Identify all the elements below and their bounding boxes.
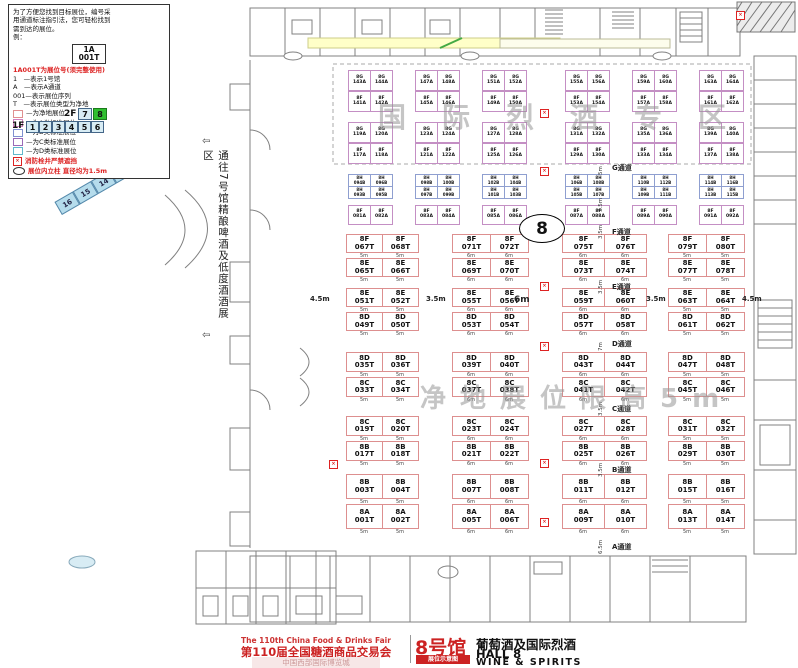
legend-fire-note: 消防栓井严禁遮挡 xyxy=(25,157,77,165)
booth-width-label: 6m xyxy=(452,277,490,283)
booth-8D050T: 8D050T xyxy=(382,312,419,331)
footer-banner: The 110th China Food & Drinks Fair 第110届… xyxy=(0,630,798,666)
fire-hydrant-icon: × xyxy=(329,460,338,469)
floor-label-2f: 2F xyxy=(64,109,76,119)
booth-width-label: 5m xyxy=(346,529,382,535)
booth-width-label: 5m xyxy=(706,253,744,259)
booth-8F126A: 8F126A xyxy=(504,143,527,164)
booth-width-label: 6m xyxy=(452,372,490,378)
booth-8H103B: 8H103B xyxy=(504,186,527,199)
booth-type-swatch xyxy=(13,138,23,146)
fire-hydrant-icon: × xyxy=(13,157,22,166)
booth-8C041T: 8C041T xyxy=(562,377,605,397)
booth-width-label: 5m xyxy=(706,461,744,467)
booth-8F118A: 8F118A xyxy=(370,143,393,164)
booth-8F092A: 8F092A xyxy=(721,205,744,225)
booth-8F129A: 8F129A xyxy=(565,143,588,164)
legend-swatch-row: —为C类标准展位 xyxy=(13,138,165,146)
booth-width-label: 5m xyxy=(382,499,418,505)
booth-width-label: 5m xyxy=(668,277,706,283)
booth-8G152A: 8G152A xyxy=(504,70,527,91)
legend-column-note: 展位内立柱 直径均为1.5m xyxy=(28,167,107,175)
booth-8H105B: 8H105B xyxy=(565,186,588,199)
booth-8B012T: 8B012T xyxy=(604,474,647,499)
booth-8E074T: 8E074T xyxy=(604,258,647,277)
booth-8E052T: 8E052T xyxy=(382,288,419,307)
booth-width-label: 6m xyxy=(490,277,528,283)
booth-width-label: 5m xyxy=(668,253,706,259)
booth-width-label: 5m xyxy=(382,277,418,283)
booth-8F146A: 8F146A xyxy=(437,91,460,112)
booth-8G144A: 8G144A xyxy=(370,70,393,91)
booth-width-label: 5m xyxy=(382,331,418,337)
booth-8A002T: 8A002T xyxy=(382,504,419,529)
aisle-width-label: 3.5m xyxy=(598,198,604,212)
booth-8B018T: 8B018T xyxy=(382,441,419,461)
booth-8B017T: 8B017T xyxy=(346,441,383,461)
cross-aisle-width: 4.5m xyxy=(742,295,762,303)
booth-width-label: 5m xyxy=(382,529,418,535)
booth-width-label: 5m xyxy=(706,529,744,535)
booth-8C028T: 8C028T xyxy=(604,416,647,436)
booth-8H113B: 8H113B xyxy=(699,186,722,199)
cross-aisle-width: 4.5m xyxy=(310,295,330,303)
booth-8D035T: 8D035T xyxy=(346,352,383,372)
booth-8H109B: 8H109B xyxy=(632,186,655,199)
booth-8H095B: 8H095B xyxy=(370,186,393,199)
booth-8G147A: 8G147A xyxy=(415,70,438,91)
booth-width-label: 6m xyxy=(562,372,604,378)
booth-width-label: 5m xyxy=(668,397,706,403)
booth-width-label: 5m xyxy=(382,436,418,442)
hall-tab-8: 8 xyxy=(93,108,107,120)
aisle-label-F通道: F通道 xyxy=(612,227,631,237)
booth-8E077T: 8E077T xyxy=(668,258,707,277)
booth-width-label: 5m xyxy=(706,372,744,378)
booth-8C034T: 8C034T xyxy=(382,377,419,397)
hall-tab-1: 1 xyxy=(26,121,39,133)
booth-8F141A: 8F141A xyxy=(348,91,371,112)
booth-width-label: 5m xyxy=(346,277,382,283)
booth-8F068T: 8F068T xyxy=(382,234,419,253)
booth-width-label: 5m xyxy=(706,499,744,505)
booth-8D057T: 8D057T xyxy=(562,312,605,331)
booth-width-label: 5m xyxy=(668,529,706,535)
booth-8F084A: 8F084A xyxy=(437,205,460,225)
booth-width-label: 5m xyxy=(706,307,744,313)
booth-width-label: 6m xyxy=(490,331,528,337)
aisle-label-C通道: C通道 xyxy=(612,404,631,414)
booth-8G148A: 8G148A xyxy=(437,70,460,91)
booth-8F149A: 8F149A xyxy=(482,91,505,112)
hall-tab-2: 2 xyxy=(39,121,52,133)
booth-8C027T: 8C027T xyxy=(562,416,605,436)
aisle-width-label: 3.5m xyxy=(598,402,604,416)
booth-width-label: 6m xyxy=(604,499,646,505)
aisle-label-B通道: B通道 xyxy=(612,465,631,475)
cross-aisle-width: 6m xyxy=(514,295,530,305)
legend-item: 1 —表示1号馆 xyxy=(13,75,165,83)
booth-8B003T: 8B003T xyxy=(346,474,383,499)
booth-8F150A: 8F150A xyxy=(504,91,527,112)
booth-width-label: 6m xyxy=(604,372,646,378)
booth-8B015T: 8B015T xyxy=(668,474,707,499)
fire-hydrant-icon: × xyxy=(540,342,549,351)
booth-8E078T: 8E078T xyxy=(706,258,745,277)
booth-8C020T: 8C020T xyxy=(382,416,419,436)
booth-width-label: 6m xyxy=(490,499,528,505)
booth-8H111B: 8H111B xyxy=(654,186,677,199)
aisle-label-D通道: D通道 xyxy=(612,339,632,349)
booth-8B011T: 8B011T xyxy=(562,474,605,499)
booth-8D040T: 8D040T xyxy=(490,352,529,372)
booth-8G124A: 8G124A xyxy=(437,122,460,143)
booth-8B026T: 8B026T xyxy=(604,441,647,461)
booth-type-swatch xyxy=(13,147,23,155)
booth-8E069T: 8E069T xyxy=(452,258,491,277)
booth-type-swatch xyxy=(13,110,23,118)
booth-8A010T: 8A010T xyxy=(604,504,647,529)
booth-8G132A: 8G132A xyxy=(587,122,610,143)
pillar-icon xyxy=(13,167,25,175)
booth-width-label: 5m xyxy=(668,307,706,313)
hall-tab-7: 7 xyxy=(78,108,92,120)
booth-8D036T: 8D036T xyxy=(382,352,419,372)
fire-hydrant-icon: × xyxy=(540,109,549,118)
booth-width-label: 6m xyxy=(604,331,646,337)
booth-width-label: 5m xyxy=(382,372,418,378)
booth-8F145A: 8F145A xyxy=(415,91,438,112)
booth-8B029T: 8B029T xyxy=(668,441,707,461)
booth-8A009T: 8A009T xyxy=(562,504,605,529)
booth-width-label: 6m xyxy=(562,253,604,259)
booth-8B004T: 8B004T xyxy=(382,474,419,499)
aisle-width-label: 7m xyxy=(598,342,604,351)
booth-8B025T: 8B025T xyxy=(562,441,605,461)
booth-8G156A: 8G156A xyxy=(587,70,610,91)
booth-8F157A: 8F157A xyxy=(632,91,655,112)
booth-8F134A: 8F134A xyxy=(654,143,677,164)
booth-width-label: 5m xyxy=(346,331,382,337)
booth-8D058T: 8D058T xyxy=(604,312,647,331)
booth-8C038T: 8C038T xyxy=(490,377,529,397)
booth-8A001T: 8A001T xyxy=(346,504,383,529)
booth-width-label: 5m xyxy=(346,397,382,403)
booth-width-label: 6m xyxy=(452,253,490,259)
booth-8B021T: 8B021T xyxy=(452,441,491,461)
booth-8C037T: 8C037T xyxy=(452,377,491,397)
booth-8C045T: 8C045T xyxy=(668,377,707,397)
legend-item: 001—表示展位序列 xyxy=(13,92,165,100)
booth-8G119A: 8G119A xyxy=(348,122,371,143)
booth-8C024T: 8C024T xyxy=(490,416,529,436)
booth-8H099B: 8H099B xyxy=(437,186,460,199)
hall-tab-3: 3 xyxy=(52,121,65,133)
hall-tagline: WINE & SPIRITS xyxy=(476,657,582,668)
booth-8F117A: 8F117A xyxy=(348,143,371,164)
booth-8G120A: 8G120A xyxy=(370,122,393,143)
booth-8A006T: 8A006T xyxy=(490,504,529,529)
booth-8B022T: 8B022T xyxy=(490,441,529,461)
booth-8C023T: 8C023T xyxy=(452,416,491,436)
booth-width-label: 6m xyxy=(452,499,490,505)
booth-8F153A: 8F153A xyxy=(565,91,588,112)
booth-width-label: 6m xyxy=(604,436,646,442)
booth-8G140A: 8G140A xyxy=(721,122,744,143)
legend-example-booth: 1A 001T xyxy=(72,44,106,65)
legend-items: 1 —表示1号馆A —表示A通道001—表示展位序列T —表示展位类型为净地 xyxy=(13,75,165,109)
booth-8D061T: 8D061T xyxy=(668,312,707,331)
booth-8H115B: 8H115B xyxy=(721,186,744,199)
booth-8G136A: 8G136A xyxy=(654,122,677,143)
booth-8F125A: 8F125A xyxy=(482,143,505,164)
legend-intro: 为了方便您找到目标展位，编号采用通道标注指引法，您可轻松找到需到达的展位。例： xyxy=(13,8,165,42)
booth-8E051T: 8E051T xyxy=(346,288,383,307)
aisle-width-label: 3.5m xyxy=(598,225,604,239)
booth-width-label: 5m xyxy=(668,436,706,442)
aisle-width-label: 6.5m xyxy=(598,540,604,554)
booth-8E064T: 8E064T xyxy=(706,288,745,307)
booth-width-label: 6m xyxy=(604,307,646,313)
booth-8E065T: 8E065T xyxy=(346,258,383,277)
fire-hydrant-icon: × xyxy=(736,11,745,20)
booth-8C032T: 8C032T xyxy=(706,416,745,436)
booth-width-label: 5m xyxy=(668,499,706,505)
booth-8F081A: 8F081A xyxy=(348,205,371,225)
booth-width-label: 5m xyxy=(706,436,744,442)
booth-8G163A: 8G163A xyxy=(699,70,722,91)
booth-width-label: 6m xyxy=(604,253,646,259)
booth-8G155A: 8G155A xyxy=(565,70,588,91)
booth-8C046T: 8C046T xyxy=(706,377,745,397)
booth-width-label: 6m xyxy=(490,253,528,259)
fire-hydrant-icon: × xyxy=(540,459,549,468)
booth-8F087A: 8F087A xyxy=(565,205,588,225)
booth-width-label: 6m xyxy=(490,461,528,467)
booth-width-label: 6m xyxy=(452,436,490,442)
booth-8E055T: 8E055T xyxy=(452,288,491,307)
hall-number-circle: 8 xyxy=(519,214,565,243)
booth-8F122A: 8F122A xyxy=(437,143,460,164)
booth-8E063T: 8E063T xyxy=(668,288,707,307)
booth-8C031T: 8C031T xyxy=(668,416,707,436)
booth-width-label: 6m xyxy=(562,529,604,535)
booth-width-label: 6m xyxy=(562,499,604,505)
booth-width-label: 6m xyxy=(452,331,490,337)
booth-width-label: 5m xyxy=(382,253,418,259)
booth-8F142A: 8F142A xyxy=(370,91,393,112)
booth-8C019T: 8C019T xyxy=(346,416,383,436)
booth-8F133A: 8F133A xyxy=(632,143,655,164)
booth-8H101B: 8H101B xyxy=(482,186,505,199)
booth-width-label: 6m xyxy=(490,372,528,378)
booth-8F158A: 8F158A xyxy=(654,91,677,112)
booth-8G159A: 8G159A xyxy=(632,70,655,91)
fire-hydrant-icon: × xyxy=(540,518,549,527)
aisle-label-E通道: E通道 xyxy=(612,282,631,292)
booth-8A013T: 8A013T xyxy=(668,504,707,529)
booth-width-label: 5m xyxy=(346,436,382,442)
fire-hydrant-icon: × xyxy=(540,167,549,176)
cross-aisle-width: 3.5m xyxy=(646,295,666,303)
venue-name: 中国西部国际博览城 xyxy=(252,657,380,668)
legend-box: 为了方便您找到目标展位，编号采用通道标注指引法，您可轻松找到需到达的展位。例： … xyxy=(8,4,170,179)
floor-label-1f: 1F xyxy=(12,121,24,131)
booth-8C042T: 8C042T xyxy=(604,377,647,397)
booth-width-label: 6m xyxy=(490,397,528,403)
hall-tab-4: 4 xyxy=(65,121,78,133)
booth-8B030T: 8B030T xyxy=(706,441,745,461)
booth-8H097B: 8H097B xyxy=(415,186,438,199)
booth-8G123A: 8G123A xyxy=(415,122,438,143)
booth-8F071T: 8F071T xyxy=(452,234,491,253)
legend-swatch-row: —为D类标准展位 xyxy=(13,147,165,155)
booth-8F162A: 8F162A xyxy=(721,91,744,112)
booth-8B016T: 8B016T xyxy=(706,474,745,499)
booth-width-label: 5m xyxy=(668,331,706,337)
booth-width-label: 5m xyxy=(346,499,382,505)
booth-8G127A: 8G127A xyxy=(482,122,505,143)
booth-8G131A: 8G131A xyxy=(565,122,588,143)
booth-8G160A: 8G160A xyxy=(654,70,677,91)
banner-divider xyxy=(410,635,411,663)
booth-8F067T: 8F067T xyxy=(346,234,383,253)
booth-8F091A: 8F091A xyxy=(699,205,722,225)
booth-8F080T: 8F080T xyxy=(706,234,745,253)
booth-8G135A: 8G135A xyxy=(632,122,655,143)
plan-badge: 展位示意图 xyxy=(416,655,470,664)
hall-tab-5: 5 xyxy=(78,121,91,133)
booth-8D043T: 8D043T xyxy=(562,352,605,372)
booth-width-label: 5m xyxy=(668,461,706,467)
booth-width-label: 6m xyxy=(452,397,490,403)
booth-width-label: 5m xyxy=(668,372,706,378)
booth-8G139A: 8G139A xyxy=(699,122,722,143)
hall-tab-6: 6 xyxy=(91,121,104,133)
fire-hydrant-icon: × xyxy=(540,282,549,291)
booth-8E073T: 8E073T xyxy=(562,258,605,277)
booth-8E066T: 8E066T xyxy=(382,258,419,277)
booth-8F137A: 8F137A xyxy=(699,143,722,164)
booth-8F121A: 8F121A xyxy=(415,143,438,164)
booth-8G151A: 8G151A xyxy=(482,70,505,91)
booth-8F090A: 8F090A xyxy=(654,205,677,225)
booth-8E070T: 8E070T xyxy=(490,258,529,277)
booth-width-label: 5m xyxy=(382,397,418,403)
booth-8G164A: 8G164A xyxy=(721,70,744,91)
aisle-width-label: 3.5m xyxy=(598,280,604,294)
cross-aisle-width: 3.5m xyxy=(426,295,446,303)
booth-width-label: 6m xyxy=(604,529,646,535)
aisle-label-A通道: A通道 xyxy=(612,542,631,552)
booth-8F161A: 8F161A xyxy=(699,91,722,112)
booth-8F079T: 8F079T xyxy=(668,234,707,253)
booth-8D048T: 8D048T xyxy=(706,352,745,372)
booth-width-label: 6m xyxy=(490,436,528,442)
booth-width-label: 5m xyxy=(382,307,418,313)
booth-8F089A: 8F089A xyxy=(632,205,655,225)
booth-width-label: 6m xyxy=(490,307,528,313)
booth-8B008T: 8B008T xyxy=(490,474,529,499)
booth-width-label: 6m xyxy=(562,436,604,442)
booth-8D044T: 8D044T xyxy=(604,352,647,372)
booth-8D039T: 8D039T xyxy=(452,352,491,372)
aisle-width-label: 5m xyxy=(598,166,604,175)
booth-8F130A: 8F130A xyxy=(587,143,610,164)
booth-8D054T: 8D054T xyxy=(490,312,529,331)
legend-example-line2: 001T xyxy=(73,54,105,62)
aisle-width-label: 3.5m xyxy=(598,463,604,477)
booth-8A005T: 8A005T xyxy=(452,504,491,529)
booth-width-label: 6m xyxy=(452,461,490,467)
booth-width-label: 5m xyxy=(346,461,382,467)
booth-width-label: 5m xyxy=(706,331,744,337)
booth-width-label: 6m xyxy=(490,529,528,535)
aisle-label-G通道: G通道 xyxy=(612,163,632,173)
booth-width-label: 6m xyxy=(604,397,646,403)
legend-code-note: 1A001T为展位号(须完整使用) xyxy=(13,66,165,74)
booth-width-label: 6m xyxy=(562,331,604,337)
booth-width-label: 6m xyxy=(452,529,490,535)
booth-width-label: 5m xyxy=(382,461,418,467)
booth-8D049T: 8D049T xyxy=(346,312,383,331)
booth-width-label: 5m xyxy=(346,253,382,259)
booth-8F154A: 8F154A xyxy=(587,91,610,112)
booth-width-label: 5m xyxy=(706,277,744,283)
booth-width-label: 6m xyxy=(562,307,604,313)
booth-8F085A: 8F085A xyxy=(482,205,505,225)
booth-8F083A: 8F083A xyxy=(415,205,438,225)
booth-width-label: 6m xyxy=(452,307,490,313)
booth-8C033T: 8C033T xyxy=(346,377,383,397)
booth-8D047T: 8D047T xyxy=(668,352,707,372)
booth-8G143A: 8G143A xyxy=(348,70,371,91)
legend-item: A —表示A通道 xyxy=(13,83,165,91)
booth-8F082A: 8F082A xyxy=(370,205,393,225)
booth-width-label: 5m xyxy=(706,397,744,403)
booth-width-label: 5m xyxy=(346,372,382,378)
booth-8F138A: 8F138A xyxy=(721,143,744,164)
booth-8B007T: 8B007T xyxy=(452,474,491,499)
booth-8D062T: 8D062T xyxy=(706,312,745,331)
booth-8H093B: 8H093B xyxy=(348,186,371,199)
booth-8G128A: 8G128A xyxy=(504,122,527,143)
booth-width-label: 5m xyxy=(346,307,382,313)
booth-8D053T: 8D053T xyxy=(452,312,491,331)
booth-8A014T: 8A014T xyxy=(706,504,745,529)
